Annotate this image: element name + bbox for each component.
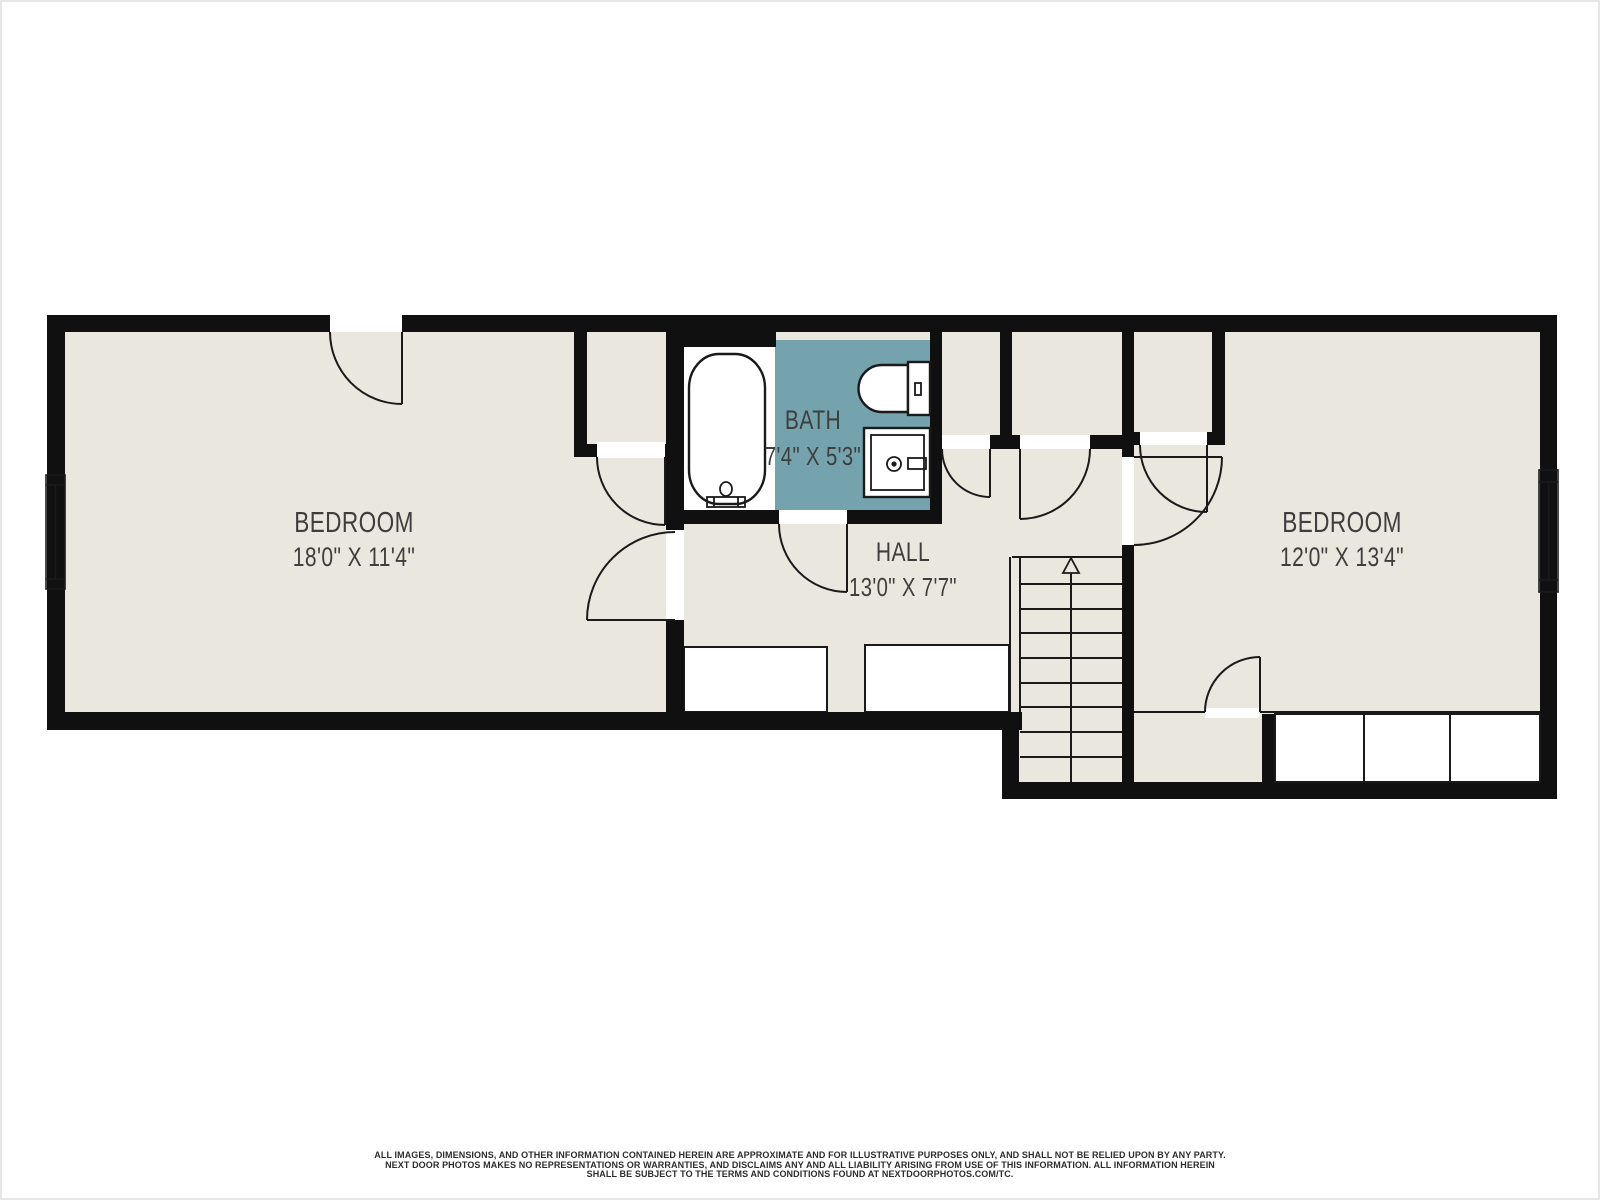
hall-storage-right [865,645,1009,712]
wall-segment [930,329,942,524]
wall-segment [574,444,597,457]
door-opening [942,435,990,449]
wall-segment [1262,714,1275,782]
door-opening [1205,708,1260,718]
wall-segment [684,332,776,347]
bathtub [689,354,765,507]
wall-segment [47,712,1022,730]
bedroom-right-label: BEDROOM [1282,505,1402,538]
disclaimer-line-3: SHALL BE SUBJECT TO THE TERMS AND CONDIT… [2,1170,1598,1180]
disclaimer: ALL IMAGES, DIMENSIONS, AND OTHER INFORM… [2,1151,1598,1180]
door-opening [779,510,847,524]
closet-sliding-doors [1275,714,1540,782]
door-opening [597,442,665,458]
bedroom-left-dimensions: 18'0" X 11'4" [293,543,415,573]
wall-segment [1122,329,1134,782]
door-opening [1020,435,1090,449]
floor-plan-page: BEDROOM 18'0" X 11'4" BATH 7'4" X 5'3" H… [0,0,1600,1200]
bath-dimensions: 7'4" X 5'3" [765,442,861,471]
wall-segment [1212,329,1225,445]
bedroom-right-dimensions: 12'0" X 13'4" [1280,543,1404,573]
sink [864,428,930,497]
door-opening [1140,432,1207,445]
hall-label: HALL [876,538,930,568]
wall-segment [1000,329,1012,449]
wall-segment [1002,782,1557,799]
floor-plan-svg: BEDROOM 18'0" X 11'4" BATH 7'4" X 5'3" H… [2,2,1600,1200]
toilet [859,362,931,415]
hall-dimensions: 13'0" X 7'7" [849,573,957,602]
hall-storage-left [684,647,827,712]
door-opening [666,530,684,620]
door-opening [1122,457,1134,545]
door-opening [330,315,402,332]
bedroom-left-label: BEDROOM [294,505,414,538]
wall-segment [574,329,587,457]
wall-segment [47,315,1557,332]
bath-label: BATH [785,406,841,436]
